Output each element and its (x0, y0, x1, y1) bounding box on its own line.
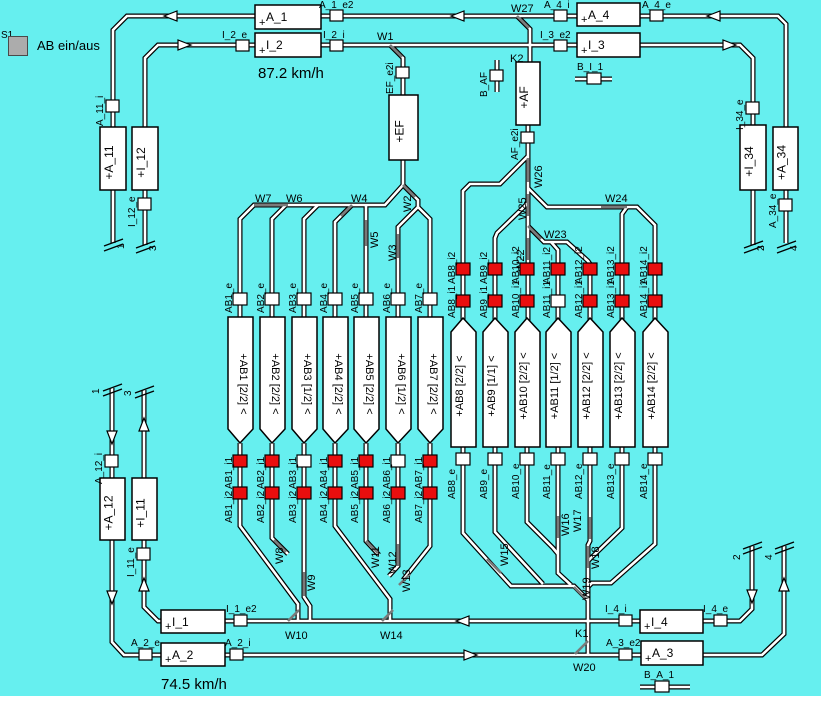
sensor-label: AB2_i2 (256, 490, 267, 523)
sensor-label: AB1_i2 (224, 490, 235, 523)
sensor-label-A_3_e2: A_3_e2 (606, 638, 641, 649)
block-label-AB8: +AB8 [2/2] < (454, 355, 466, 416)
sensor-label: AB14_i1 (639, 280, 650, 318)
sensor-A_3_e2[interactable] (619, 649, 632, 660)
track-end-number: 2 (732, 554, 743, 560)
sensor-label: AB4_e (319, 283, 330, 313)
sensor-AB2_i1[interactable] (265, 455, 279, 467)
switch-label-W6: W6 (286, 193, 303, 205)
sensor-AB8_e[interactable] (456, 453, 470, 465)
sensor-AB1_i1[interactable] (233, 455, 247, 467)
sensor-label: AB4_i1 (319, 456, 330, 489)
switch-label-W23: W23 (544, 229, 567, 241)
sensor-label: AB1_i1 (224, 456, 235, 489)
sensor-A_11_i[interactable] (106, 100, 119, 112)
block-plus: + (581, 45, 587, 57)
sensor-label-I_1_e2: I_1_e2 (226, 604, 257, 615)
switch-label-W3: W3 (387, 245, 399, 262)
switch-label-W13: W13 (401, 569, 413, 592)
sensor-label: AB14_i2 (639, 246, 650, 284)
block-plus: + (165, 654, 171, 666)
block-label-I_12: +I_12 (134, 147, 148, 178)
direction-arrow-up (139, 418, 149, 431)
direction-arrow-down (107, 431, 117, 444)
sensor-A_2_i[interactable] (230, 649, 243, 660)
track-diagram-svg: W1W2W3W4W5W6W7W8W9W10W11W12W13W14W15W16W… (0, 0, 821, 704)
sensor-label: AB4_i2 (319, 490, 330, 523)
block-label-I_2: I_2 (266, 38, 283, 52)
sensor-AB13_i2[interactable] (615, 263, 629, 275)
sensor-AB5_e[interactable] (359, 293, 373, 305)
sensor-AB11_i1[interactable] (551, 295, 565, 307)
block-label-AB12: +AB12 [2/2] < (581, 352, 593, 419)
block-label-AB7: +AB7 [2/2] < (427, 353, 439, 414)
sensor-label-A_11_i: A_11_i (95, 96, 106, 126)
switch-label-W16: W16 (560, 513, 572, 536)
sensor-label: AB12_i1 (574, 280, 585, 318)
switch-label-W2: W2 (402, 196, 414, 213)
switch-label-W25: W25 (517, 197, 529, 220)
block-plus: + (644, 621, 650, 633)
block-label-I_3: I_3 (588, 38, 605, 52)
sensor-label: AB8_i1 (447, 285, 458, 318)
sensor-label-EF_e2i: EF_e2i (385, 62, 396, 94)
sensor-I_12_e[interactable] (138, 198, 151, 210)
direction-arrow-left (451, 11, 464, 21)
block-label-AB14: +AB14 [2/2] < (646, 352, 658, 419)
sensor-label-AF_e2i: AF_e2i (510, 128, 521, 160)
bottom-bar (0, 696, 821, 704)
sensor-label-B_AF: B_AF (479, 72, 490, 97)
switch-label-W24: W24 (605, 193, 628, 205)
sensor-EF_e2i[interactable] (396, 67, 409, 78)
ab-toggle-button[interactable] (8, 36, 28, 56)
switch-label-W10: W10 (285, 630, 308, 642)
track-line (145, 45, 753, 245)
sensor-label: AB2_e (256, 283, 267, 313)
sensor-AB14_i2[interactable] (648, 263, 662, 275)
track-outline (113, 16, 786, 243)
sensor-AB7_i2[interactable] (423, 487, 437, 499)
sensor-AB7_e[interactable] (423, 293, 437, 305)
sensor-label-A_1_e2: A_1_e2 (319, 0, 354, 11)
track-end-number: 4 (789, 245, 800, 251)
switch-label-W19: W19 (581, 577, 593, 600)
sensor-AB14_e[interactable] (648, 453, 662, 465)
sensor-I_11_e[interactable] (137, 548, 150, 560)
block-label-AB3: +AB3 [1/2] < (301, 353, 313, 414)
sensor-AB10_i1[interactable] (520, 295, 534, 307)
sensor-label-I_12_e: I_12_e (127, 196, 138, 227)
sensor-AB13_e[interactable] (615, 453, 629, 465)
block-label-A_34: +A_34 (775, 145, 789, 180)
speed-readout-upper: 87.2 km/h (258, 65, 324, 82)
block-label-AB10: +AB10 [2/2] < (518, 352, 530, 419)
sensor-A_1_e2[interactable] (330, 10, 343, 21)
sensor-label: AB1_e (224, 283, 235, 313)
sensor-AB5_i1[interactable] (359, 455, 373, 467)
block-label-AB6: +AB6 [1/2] < (395, 353, 407, 414)
sensor-AB9_i2[interactable] (488, 263, 502, 275)
sensor-label: AB6_e (382, 283, 393, 313)
sensor-label: AB5_i1 (350, 456, 361, 489)
switch-label-W4: W4 (351, 193, 368, 205)
block-label-AB4: +AB4 [2/2] < (332, 353, 344, 414)
block-label-AB11: +AB11 [1/2] < (549, 353, 561, 419)
sensor-label: AB13_e (606, 463, 617, 499)
crossing-label-K2: K2 (510, 53, 523, 65)
direction-arrow-right (723, 40, 736, 50)
direction-arrow-left (164, 11, 177, 21)
switch-label-W5: W5 (369, 232, 381, 249)
sensor-AB6_i2[interactable] (391, 487, 405, 499)
sensor-AB14_i1[interactable] (648, 295, 662, 307)
sensor-AB9_i1[interactable] (488, 295, 502, 307)
direction-arrow-up (779, 578, 789, 591)
block-label-I_4: I_4 (651, 615, 668, 629)
sensor-label-A_2_e: A_2_e (131, 638, 160, 649)
switch-label-W7: W7 (255, 193, 272, 205)
sensor-label: AB9_e (479, 469, 490, 499)
switch-W2[interactable] (403, 185, 415, 197)
sensor-label-I_2_i: I_2_i (323, 30, 345, 41)
direction-arrow-left (707, 11, 720, 21)
sensor-I_2_i[interactable] (330, 40, 343, 51)
sensor-AB6_i1[interactable] (391, 455, 405, 467)
sensor-AB8_i2[interactable] (456, 263, 470, 275)
sensor-I_4_i[interactable] (619, 615, 632, 626)
block-label-AB2: +AB2 [2/2] < (269, 353, 281, 414)
sensor-AB13_i1[interactable] (615, 295, 629, 307)
sensor-I_34_e[interactable] (746, 102, 759, 114)
track-end-number: 1 (116, 243, 127, 249)
switch-label-W17: W17 (572, 509, 584, 532)
sensor-label: AB7_i2 (414, 490, 425, 523)
sensor-label-I_4_e: I_4_e (703, 604, 728, 615)
direction-arrow-down (747, 590, 757, 603)
sensor-AB3_e[interactable] (297, 293, 311, 305)
sensor-label: AB13_i2 (606, 246, 617, 284)
sensor-AB11_i2[interactable] (551, 263, 565, 275)
sensor-label: AB12_e (574, 463, 585, 499)
block-label-A_1: A_1 (266, 10, 288, 24)
sensor-label-I_34_e: I_34_e (735, 99, 746, 130)
direction-arrow-down (107, 591, 117, 604)
sensor-label-I_11_e: I_11_e (126, 547, 137, 577)
sensor-label: AB9_i1 (479, 285, 490, 318)
sensor-A_4_e[interactable] (650, 10, 663, 21)
switch-label-W26: W26 (533, 165, 545, 188)
sensor-label-B_I_1: B_I_1 (577, 62, 604, 73)
block-label-A_4: A_4 (588, 8, 610, 22)
switch-label-W1: W1 (377, 31, 394, 43)
sensor-A_12_i[interactable] (105, 455, 118, 467)
block-label-AF: +AF (517, 86, 531, 108)
sensor-label: AB7_i1 (414, 456, 425, 489)
block-label-I_1: I_1 (172, 615, 189, 629)
sensor-label: AB2_i1 (256, 456, 267, 489)
sensor-label-I_3_e2: I_3_e2 (540, 30, 571, 41)
track-line (113, 16, 786, 243)
block-label-A_2: A_2 (172, 648, 194, 662)
sensor-AB11_e[interactable] (551, 453, 565, 465)
sensor-I_1_e2[interactable] (234, 615, 247, 626)
sensor-AB5_i2[interactable] (359, 487, 373, 499)
switch-label-W15: W15 (499, 543, 511, 566)
ab-button-label: AB ein/aus (37, 38, 100, 53)
block-plus: + (165, 621, 171, 633)
track-end-number: 4 (764, 554, 775, 560)
block-plus: + (645, 653, 651, 665)
block-label-I_11: +I_11 (134, 498, 148, 528)
sensor-label: AB8_i2 (447, 251, 458, 284)
sensor-AB12_i2[interactable] (583, 263, 597, 275)
sensor-AB9_e[interactable] (488, 453, 502, 465)
track-end-number: 3 (123, 390, 134, 396)
sensor-AB6_e[interactable] (391, 293, 405, 305)
sensor-B_AF[interactable] (490, 70, 503, 81)
sensor-AB3_i2[interactable] (297, 487, 311, 499)
sensor-label: AB3_i2 (288, 490, 299, 523)
sensor-AB12_i1[interactable] (583, 295, 597, 307)
switch-label-W12: W12 (387, 551, 399, 574)
switch-label-W8: W8 (274, 548, 286, 565)
sensor-label: AB12_i2 (574, 246, 585, 284)
sensor-I_4_e[interactable] (714, 615, 727, 626)
switch-label-W11: W11 (370, 546, 382, 568)
sensor-label-A_12_i: A_12_i (94, 453, 105, 484)
block-label-AB1: +AB1 [2/2] < (237, 353, 249, 414)
block-label-I_34: +I_34 (742, 146, 756, 177)
sensor-label-A_2_i: A_2_i (225, 638, 251, 649)
track-diagram-stage: W1W2W3W4W5W6W7W8W9W10W11W12W13W14W15W16W… (0, 0, 821, 704)
crossing-label-K1: K1 (575, 628, 588, 640)
direction-arrow-left (456, 616, 469, 626)
sensor-label: AB11_i2 (542, 246, 553, 284)
sensor-label: AB14_e (639, 463, 650, 499)
direction-arrow-right (178, 40, 191, 50)
track-outline (145, 45, 753, 245)
sensor-label: AB7_e (414, 283, 425, 313)
direction-arrow-up (139, 578, 149, 591)
block-plus: + (259, 17, 265, 29)
sensor-AB4_i2[interactable] (328, 487, 342, 499)
switch-label-W20: W20 (573, 662, 596, 674)
sensor-label: AB8_e (447, 469, 458, 499)
track-end-number: 2 (756, 245, 767, 251)
direction-arrow-right (464, 650, 477, 660)
sensor-label: AB10_i1 (511, 280, 522, 318)
sensor-B_A_1[interactable] (655, 681, 669, 692)
sensor-label-I_4_i: I_4_i (605, 604, 627, 615)
sensor-A_2_e[interactable] (139, 649, 152, 660)
sensor-AB12_e[interactable] (583, 453, 597, 465)
block-plus: + (581, 14, 587, 26)
sensor-label: AB11_i1 (542, 280, 553, 318)
switch-label-W9: W9 (306, 575, 318, 592)
block-label-A_11: +A_11 (102, 145, 116, 179)
sensor-AB7_i1[interactable] (423, 455, 437, 467)
block-label-A_12: +A_12 (102, 495, 116, 530)
sensor-A_4_i[interactable] (554, 10, 567, 21)
switch-label-W27: W27 (511, 3, 534, 15)
sensor-label: AB11_e (542, 464, 553, 499)
block-label-AB9: +AB9 [1/1] < (486, 355, 498, 416)
sensor-AB10_i2[interactable] (520, 263, 534, 275)
switch-label-W18: W18 (590, 546, 602, 569)
block-label-EF: +EF (393, 120, 407, 142)
sensor-B_I_1[interactable] (587, 73, 601, 84)
sensor-I_2_e[interactable] (236, 40, 249, 51)
sensor-label-B_A_1: B_A_1 (644, 670, 674, 681)
sensor-label-I_2_e: I_2_e (222, 30, 247, 41)
block-label-AB5: +AB5 [2/2] < (363, 353, 375, 414)
block-label-AB13: +AB13 [2/2] < (613, 352, 625, 419)
sensor-AB3_i1[interactable] (297, 455, 311, 467)
track-end-number: 3 (148, 245, 159, 251)
sensor-label: AB5_e (350, 283, 361, 313)
track-end-number: 1 (91, 388, 102, 394)
sensor-AB1_e[interactable] (233, 293, 247, 305)
sensor-label: AB10_i2 (511, 246, 522, 284)
sensor-label: AB10_e (511, 463, 522, 499)
speed-readout-lower: 74.5 km/h (161, 676, 227, 693)
sensor-label: AB3_e (288, 283, 299, 313)
sensor-label: AB6_i2 (382, 490, 393, 523)
sensor-AB2_e[interactable] (265, 293, 279, 305)
sensor-AB8_i1[interactable] (456, 295, 470, 307)
sensor-AB1_i2[interactable] (233, 487, 247, 499)
sensor-AB2_i2[interactable] (265, 487, 279, 499)
sensor-label: AB6_i1 (382, 456, 393, 489)
sensor-label-A_4_e: A_4_e (642, 0, 671, 11)
sensor-label-A_34_e: A_34_e (768, 193, 779, 228)
sensor-label: AB13_i1 (606, 280, 617, 318)
sensor-A_34_e[interactable] (779, 199, 792, 211)
switch-label-W14: W14 (380, 630, 403, 642)
sensor-label: AB9_i2 (479, 251, 490, 284)
sensor-AB4_i1[interactable] (328, 455, 342, 467)
sensor-label-A_4_i: A_4_i (544, 0, 570, 11)
sensor-label: AB3_i1 (288, 456, 299, 489)
block-label-A_3: A_3 (652, 646, 674, 660)
sensor-AB4_e[interactable] (328, 293, 342, 305)
sensor-AF_e2i[interactable] (521, 132, 534, 143)
sensor-AB10_e[interactable] (520, 453, 534, 465)
block-plus: + (259, 45, 265, 57)
sensor-I_3_e2[interactable] (554, 40, 567, 51)
sensor-label: AB5_i2 (350, 490, 361, 523)
